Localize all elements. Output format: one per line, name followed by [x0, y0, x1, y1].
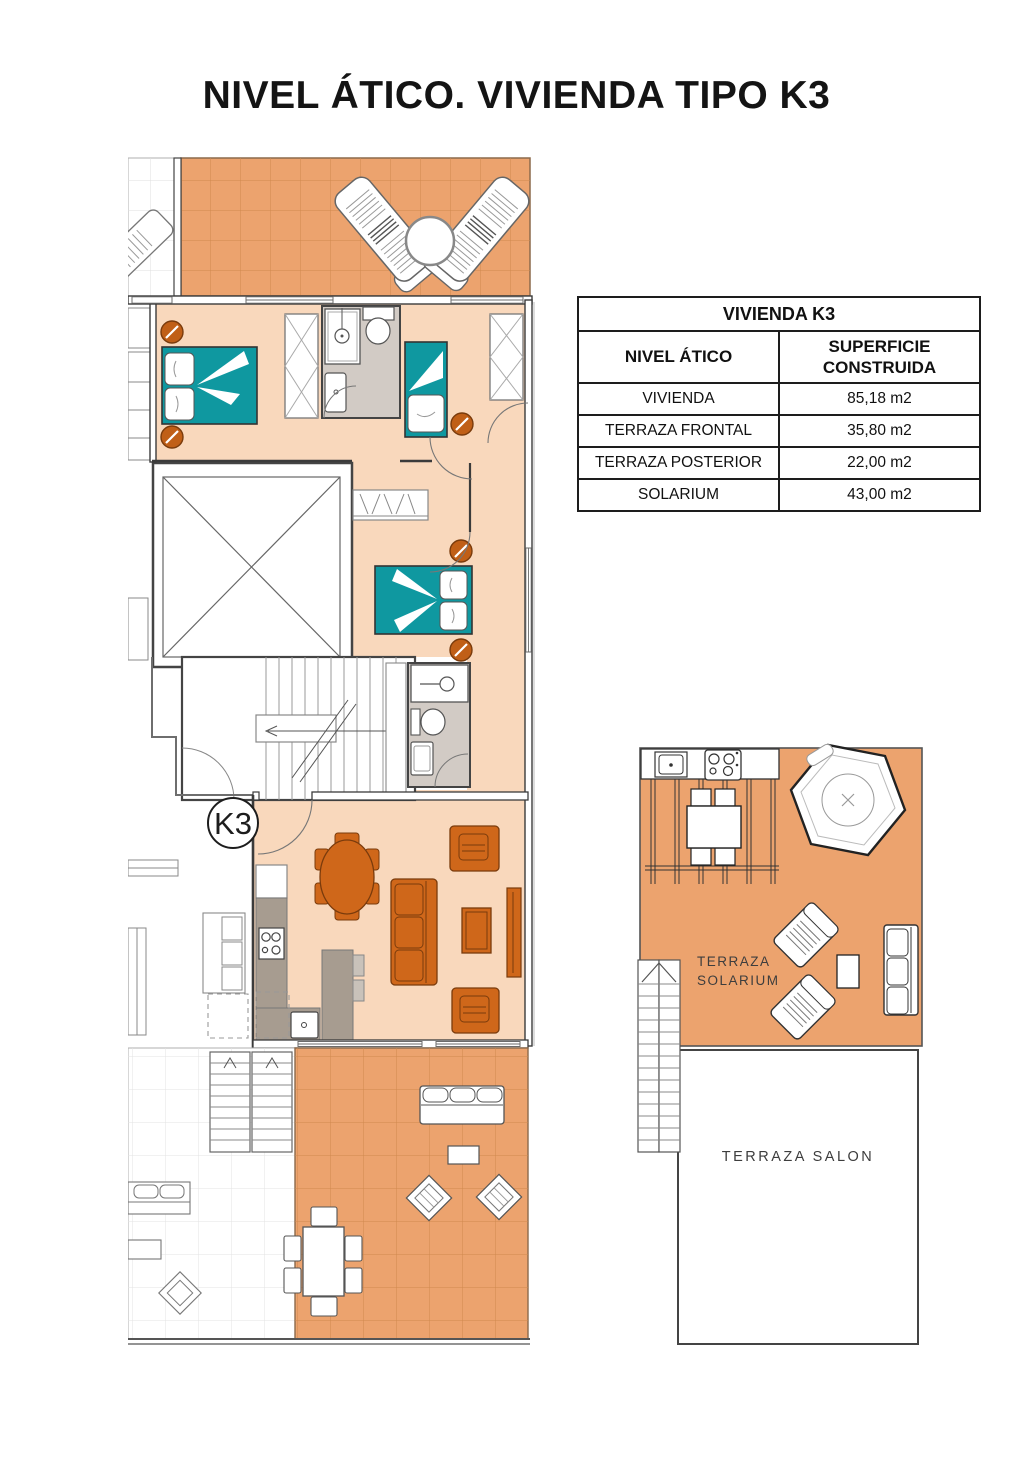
outdoor-sofa-icon	[420, 1086, 504, 1124]
kitchen-island	[322, 950, 353, 1040]
main-floor-plan: K3	[128, 153, 538, 1345]
terrace-solarium: TERRAZA SOLARIUM	[640, 742, 922, 1046]
sink-icon	[291, 1012, 318, 1038]
table-row: TERRAZA FRONTAL 35,80 m2	[578, 415, 980, 447]
toilet-icon	[411, 709, 420, 735]
outdoor-kitchen	[641, 749, 779, 780]
row-name: TERRAZA POSTERIOR	[578, 447, 779, 479]
terrace-solarium-label: TERRAZA	[697, 954, 771, 969]
row-value: 85,18 m2	[779, 383, 980, 415]
table-row: VIVIENDA 85,18 m2	[578, 383, 980, 415]
bathroom-2	[386, 663, 470, 793]
patio-lightwell	[153, 463, 352, 667]
tv-unit-icon	[507, 888, 521, 977]
duct	[386, 663, 406, 793]
outdoor-sofa-icon	[884, 925, 918, 1015]
row-name: TERRAZA FRONTAL	[578, 415, 779, 447]
row-value: 35,80 m2	[779, 415, 980, 447]
wardrobe	[490, 314, 523, 400]
dining-table-icon	[320, 840, 374, 914]
staircase	[182, 657, 415, 800]
row-value: 43,00 m2	[779, 479, 980, 511]
bbq-stove-icon	[705, 750, 741, 780]
side-table-icon	[837, 955, 859, 988]
table-row: TERRAZA POSTERIOR 22,00 m2	[578, 447, 980, 479]
stool-icon	[353, 955, 364, 976]
sink-icon	[325, 373, 346, 412]
terrace-salon: TERRAZA SALON	[678, 1050, 918, 1344]
solarium-stairs	[638, 960, 680, 1152]
unit-badge-label: K3	[214, 806, 252, 841]
bathroom-1	[322, 306, 400, 418]
armchair-icon	[450, 826, 499, 871]
unit-badge: K3	[208, 798, 258, 848]
table-row: SOLARIUM 43,00 m2	[578, 479, 980, 511]
table-title: VIVIENDA K3	[578, 297, 980, 331]
solarium-plan: TERRAZA SOLARIUM TERRAZA SALON	[630, 740, 930, 1352]
row-name: VIVIENDA	[578, 383, 779, 415]
terrace-salon-label: TERRAZA SALON	[722, 1149, 875, 1165]
col-header-surface: SUPERFICIE CONSTRUIDA	[779, 331, 980, 383]
stove-icon	[259, 928, 284, 959]
side-table-icon	[448, 1146, 479, 1164]
wardrobe	[285, 314, 318, 418]
row-name: SOLARIUM	[578, 479, 779, 511]
page: NIVEL ÁTICO. VIVIENDA TIPO K3	[0, 0, 1033, 1462]
row-value: 22,00 m2	[779, 447, 980, 479]
terrace-solarium-label: SOLARIUM	[697, 973, 780, 988]
area-table: VIVIENDA K3 NIVEL ÁTICO SUPERFICIE CONST…	[577, 296, 981, 512]
stool-icon	[353, 980, 364, 1001]
sofa-icon	[391, 879, 437, 985]
round-table-icon	[406, 217, 454, 265]
armchair-icon	[452, 988, 499, 1033]
rear-terrace	[128, 1048, 530, 1344]
col-header-level: NIVEL ÁTICO	[578, 331, 779, 383]
page-title: NIVEL ÁTICO. VIVIENDA TIPO K3	[0, 74, 1033, 118]
front-terrace	[128, 158, 535, 297]
